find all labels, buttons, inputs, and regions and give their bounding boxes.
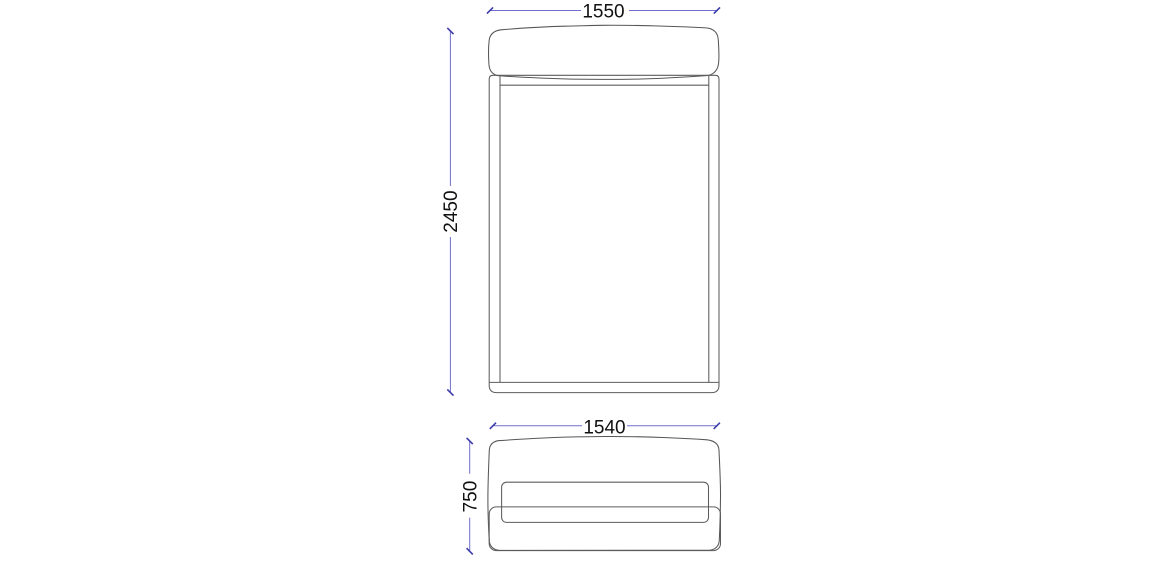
svg-text:750: 750 [461,481,482,513]
svg-text:1540: 1540 [583,417,625,438]
svg-text:2450: 2450 [441,190,462,232]
svg-text:1550: 1550 [582,2,624,23]
